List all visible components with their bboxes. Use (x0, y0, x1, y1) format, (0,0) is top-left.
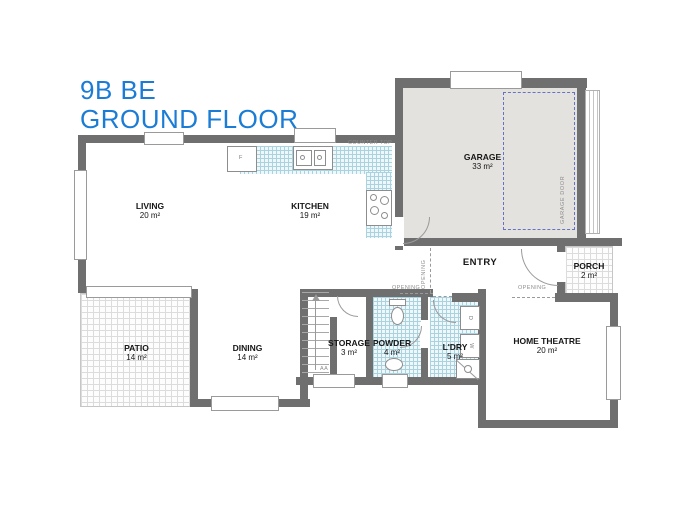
door-arc-front-door (521, 249, 558, 286)
window-living-top (144, 132, 184, 145)
dryer-label: D (467, 316, 473, 320)
window-kitchen-sink (294, 128, 336, 143)
window-garage-top (450, 71, 522, 89)
room-label-laundry: L'DRY 5 m² (432, 342, 478, 362)
burner-icon (370, 194, 377, 201)
room-name: PATIO (104, 343, 169, 353)
room-label-patio: PATIO 14 m² (104, 343, 169, 363)
counter-top-label: COUNTER TOP (348, 140, 392, 146)
stair-direction-line (315, 300, 316, 370)
room-name: LIVING (110, 201, 190, 211)
room-area: 20 m² (512, 346, 582, 356)
toilet-bowl (391, 307, 404, 325)
wall (555, 293, 618, 302)
window-storage-bottom (313, 374, 355, 388)
garage-door-label: GARAGE DOOR (560, 140, 566, 224)
plan-title-line2: GROUND FLOOR (80, 105, 298, 134)
room-label-kitchen: KITCHEN 19 m² (275, 201, 345, 221)
room-name: STORAGE (325, 338, 373, 348)
door-arc-storage (337, 296, 358, 317)
wall (366, 289, 373, 377)
window-living-left (74, 170, 87, 260)
room-label-storage: STORAGE 3 m² (325, 338, 373, 358)
plan-title: 9B BE GROUND FLOOR (80, 76, 298, 134)
window-ref-label: AA (320, 366, 328, 372)
window-home-theatre-right (606, 326, 621, 400)
room-label-living: LIVING 20 m² (110, 201, 190, 221)
window-dining-bottom (211, 396, 279, 411)
fridge-label: F (239, 155, 243, 161)
wall (421, 348, 428, 377)
room-area: 3 m² (325, 348, 373, 358)
room-label-porch: PORCH 2 m² (567, 261, 611, 281)
trough-drain-icon (464, 365, 472, 373)
room-name: L'DRY (432, 342, 478, 352)
room-area: 20 m² (110, 211, 190, 221)
room-name: GARAGE (445, 152, 520, 162)
wall (190, 289, 198, 407)
sink-drain-icon (300, 155, 305, 160)
sliding-door-patio (86, 286, 192, 298)
room-name: DINING (215, 343, 280, 353)
toilet-cistern (389, 299, 406, 306)
window-powder-bottom (382, 374, 408, 388)
opening-dash-home-theatre (512, 297, 555, 298)
dryer: D (460, 306, 480, 330)
room-label-powder: POWDER 4 m² (370, 338, 414, 358)
burner-icon (370, 206, 379, 215)
room-area: 14 m² (215, 353, 280, 363)
room-area: 14 m² (104, 353, 169, 363)
room-area: 2 m² (567, 271, 611, 281)
burner-icon (380, 196, 389, 205)
room-area: 33 m² (445, 162, 520, 172)
powder-basin (385, 358, 403, 371)
room-name: ENTRY (450, 258, 510, 268)
opening-label-vertical: OPENING (421, 255, 427, 289)
room-area: 5 m² (432, 352, 478, 362)
room-label-garage: GARAGE 33 m² (445, 152, 520, 172)
room-label-home-theatre: HOME THEATRE 20 m² (512, 336, 582, 356)
opening-dash-laundry-top (433, 296, 452, 297)
fridge: F (227, 146, 257, 172)
opening-label-left: OPENING (392, 285, 420, 291)
floor-plan-canvas: 9B BE GROUND FLOOR GARAGE DOOR (0, 0, 690, 517)
room-label-entry: ENTRY (450, 258, 510, 268)
stair-up-arrow-icon (312, 294, 320, 301)
room-area: 4 m² (370, 348, 414, 358)
burner-icon (381, 212, 388, 219)
plan-title-line1: 9B BE (80, 76, 298, 105)
garage-door-panel (585, 90, 600, 234)
opening-dash-entry-left (430, 248, 431, 293)
door-gap-storage (330, 297, 337, 317)
wall (478, 420, 618, 428)
room-label-dining: DINING 14 m² (215, 343, 280, 363)
room-name: HOME THEATRE (512, 336, 582, 346)
room-name: KITCHEN (275, 201, 345, 211)
room-area: 19 m² (275, 211, 345, 221)
opening-dash-kitchen-hall (400, 293, 433, 294)
room-name: POWDER (370, 338, 414, 348)
opening-label-right: OPENING (518, 285, 546, 291)
laundry-trough (456, 359, 480, 379)
sink-drain-icon (317, 155, 322, 160)
wall (403, 238, 622, 246)
room-name: PORCH (567, 261, 611, 271)
